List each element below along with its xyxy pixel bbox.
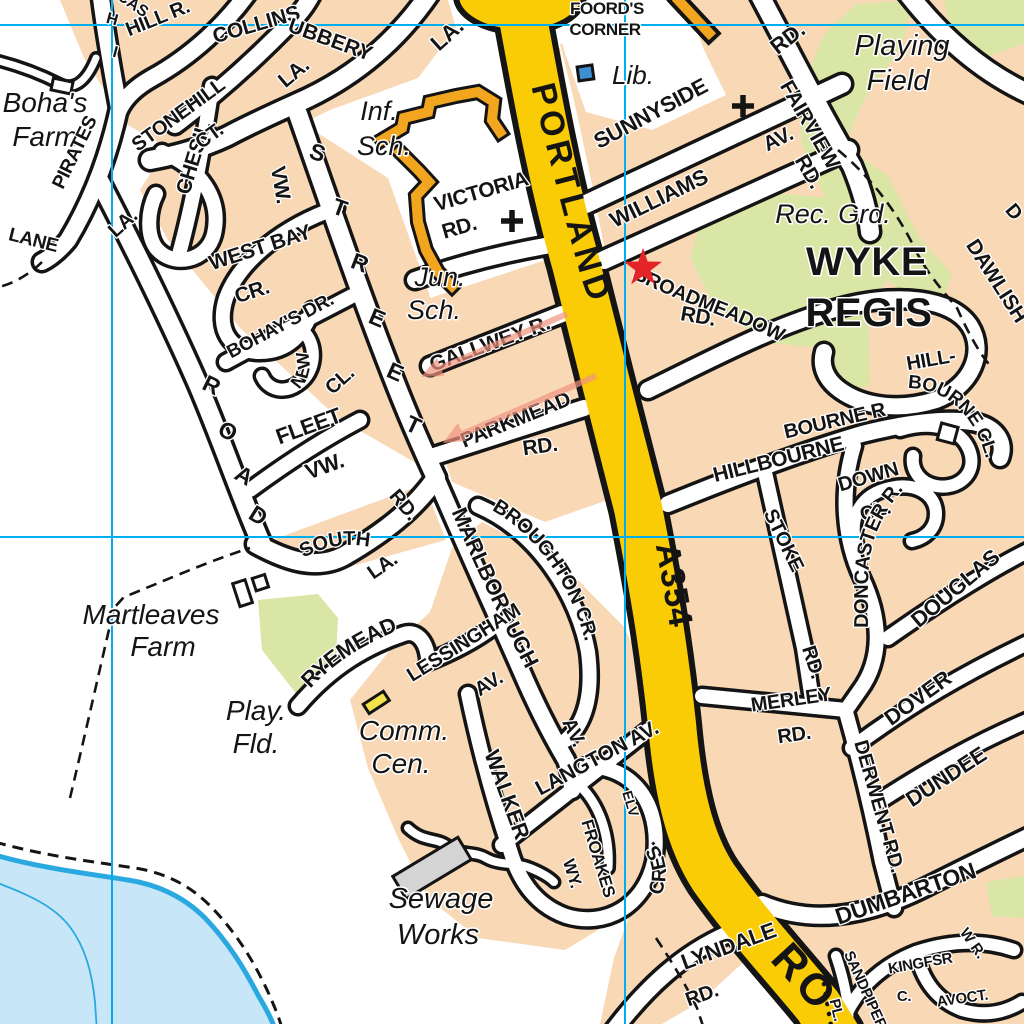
label-martleaves-farm: Farm — [130, 631, 195, 662]
street-map: Boha'sFarmInf.Sch.Jun.Sch.Lib.PlayingFie… — [0, 0, 1024, 1024]
label-martleaves: Martleaves — [83, 599, 220, 630]
label-kingfsr-c: C. — [897, 988, 911, 1005]
label-cen: Cen. — [371, 748, 430, 779]
label-jun-sch: Sch. — [407, 295, 461, 325]
library-icon — [577, 65, 594, 81]
label-inf-sch: Sch. — [357, 131, 411, 161]
label-field: Field — [867, 65, 931, 97]
label-play-fld-1: Play. — [226, 695, 286, 726]
map-page: Boha'sFarmInf.Sch.Jun.Sch.Lib.PlayingFie… — [0, 0, 1024, 1024]
label-play-fld-2: Fld. — [233, 728, 280, 759]
label-wyke: WYKE — [806, 240, 928, 284]
label-merley-rd: RD. — [776, 722, 812, 748]
label-bohas: Boha's — [3, 87, 88, 118]
green-bottomright — [986, 876, 1024, 918]
label-rec-grd: Rec. Grd. — [775, 199, 891, 229]
label-works: Works — [397, 919, 479, 951]
bourne-close-building — [937, 423, 958, 444]
label-jun: Jun. — [413, 262, 465, 292]
label-comm: Comm. — [359, 715, 449, 746]
label-regis: REGIS — [806, 291, 933, 335]
label-lib: Lib. — [612, 60, 654, 90]
label-playing: Playing — [854, 30, 949, 62]
label-sewage: Sewage — [389, 883, 494, 915]
label-parkmead-rd: RD. — [521, 433, 559, 461]
label-corner: CORNER — [569, 20, 640, 39]
martleaves-building-2 — [252, 574, 268, 590]
label-foords: FOORD'S — [570, 0, 644, 18]
label-inf: Inf. — [360, 96, 398, 126]
